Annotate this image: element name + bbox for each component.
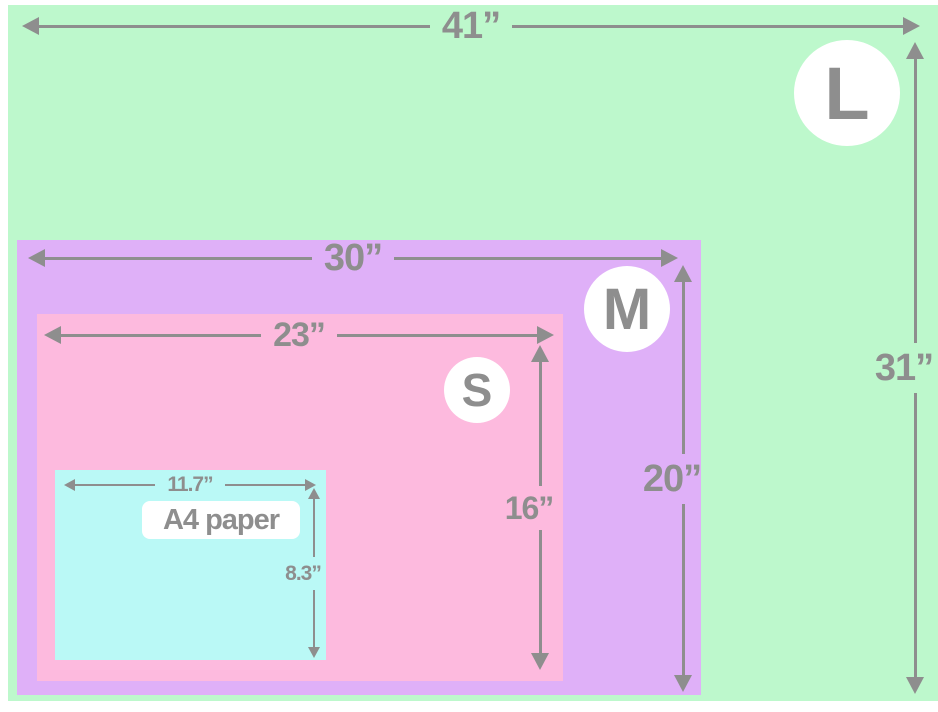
size-badge-small-letter: S (462, 363, 493, 417)
arrowhead-left-icon (28, 249, 45, 267)
dimension-label-small-height: 16” (505, 486, 554, 530)
arrowhead-up-icon (674, 265, 692, 282)
dimension-line (61, 334, 261, 337)
a4-paper-tag: A4 paper (142, 501, 300, 539)
arrowhead-down-icon (674, 675, 692, 692)
arrowhead-right-icon (537, 326, 554, 344)
dimension-label-medium-width: 30” (312, 237, 394, 280)
dimension-line (682, 282, 685, 454)
dimension-arrow-a4-height: 8.3” (301, 488, 327, 658)
arrowhead-right-icon (903, 17, 920, 35)
dimension-arrow-large-width: 41” (22, 13, 920, 39)
dimension-line (45, 257, 312, 260)
dimension-line (313, 499, 315, 557)
dimension-label-large-width: 41” (430, 5, 512, 48)
dimension-label-a4-width: 11.7” (155, 473, 224, 497)
dimension-label-medium-height: 20” (643, 454, 701, 504)
dimension-line (914, 393, 917, 677)
size-badge-medium-letter: M (603, 276, 651, 343)
arrowhead-down-icon (906, 677, 924, 694)
arrowhead-up-icon (308, 488, 320, 499)
dimension-arrow-large-height: 31” (902, 42, 928, 694)
arrowhead-left-icon (64, 479, 75, 491)
dimension-line (225, 484, 305, 486)
a4-paper-label: A4 paper (163, 504, 279, 537)
arrowhead-down-icon (308, 647, 320, 658)
size-badge-medium: M (584, 266, 670, 352)
size-badge-small: S (444, 357, 510, 423)
arrowhead-up-icon (531, 345, 549, 362)
dimension-line (337, 334, 537, 337)
dimension-line (539, 362, 542, 486)
dimension-line (313, 590, 315, 648)
dimension-label-a4-height: 8.3” (285, 557, 321, 590)
size-comparison-diagram: 41” 31” 30” 20” 23” 16” (0, 0, 938, 712)
dimension-line (512, 25, 903, 28)
dimension-line (75, 484, 155, 486)
dimension-line (682, 504, 685, 676)
arrowhead-up-icon (906, 42, 924, 59)
size-badge-large-letter: L (824, 51, 869, 136)
dimension-label-large-height: 31” (875, 343, 933, 393)
dimension-line (539, 530, 542, 654)
dimension-arrow-medium-height: 20” (670, 265, 696, 692)
dimension-line (914, 59, 917, 343)
arrowhead-left-icon (22, 17, 39, 35)
size-badge-large: L (794, 40, 900, 146)
arrowhead-down-icon (531, 653, 549, 670)
dimension-arrow-medium-width: 30” (28, 245, 678, 271)
arrowhead-left-icon (44, 326, 61, 344)
dimension-arrow-a4-width: 11.7” (64, 472, 316, 498)
dimension-label-small-width: 23” (261, 316, 337, 355)
dimension-line (394, 257, 661, 260)
dimension-arrow-small-height: 16” (527, 345, 553, 670)
dimension-line (39, 25, 430, 28)
dimension-arrow-small-width: 23” (44, 322, 554, 348)
